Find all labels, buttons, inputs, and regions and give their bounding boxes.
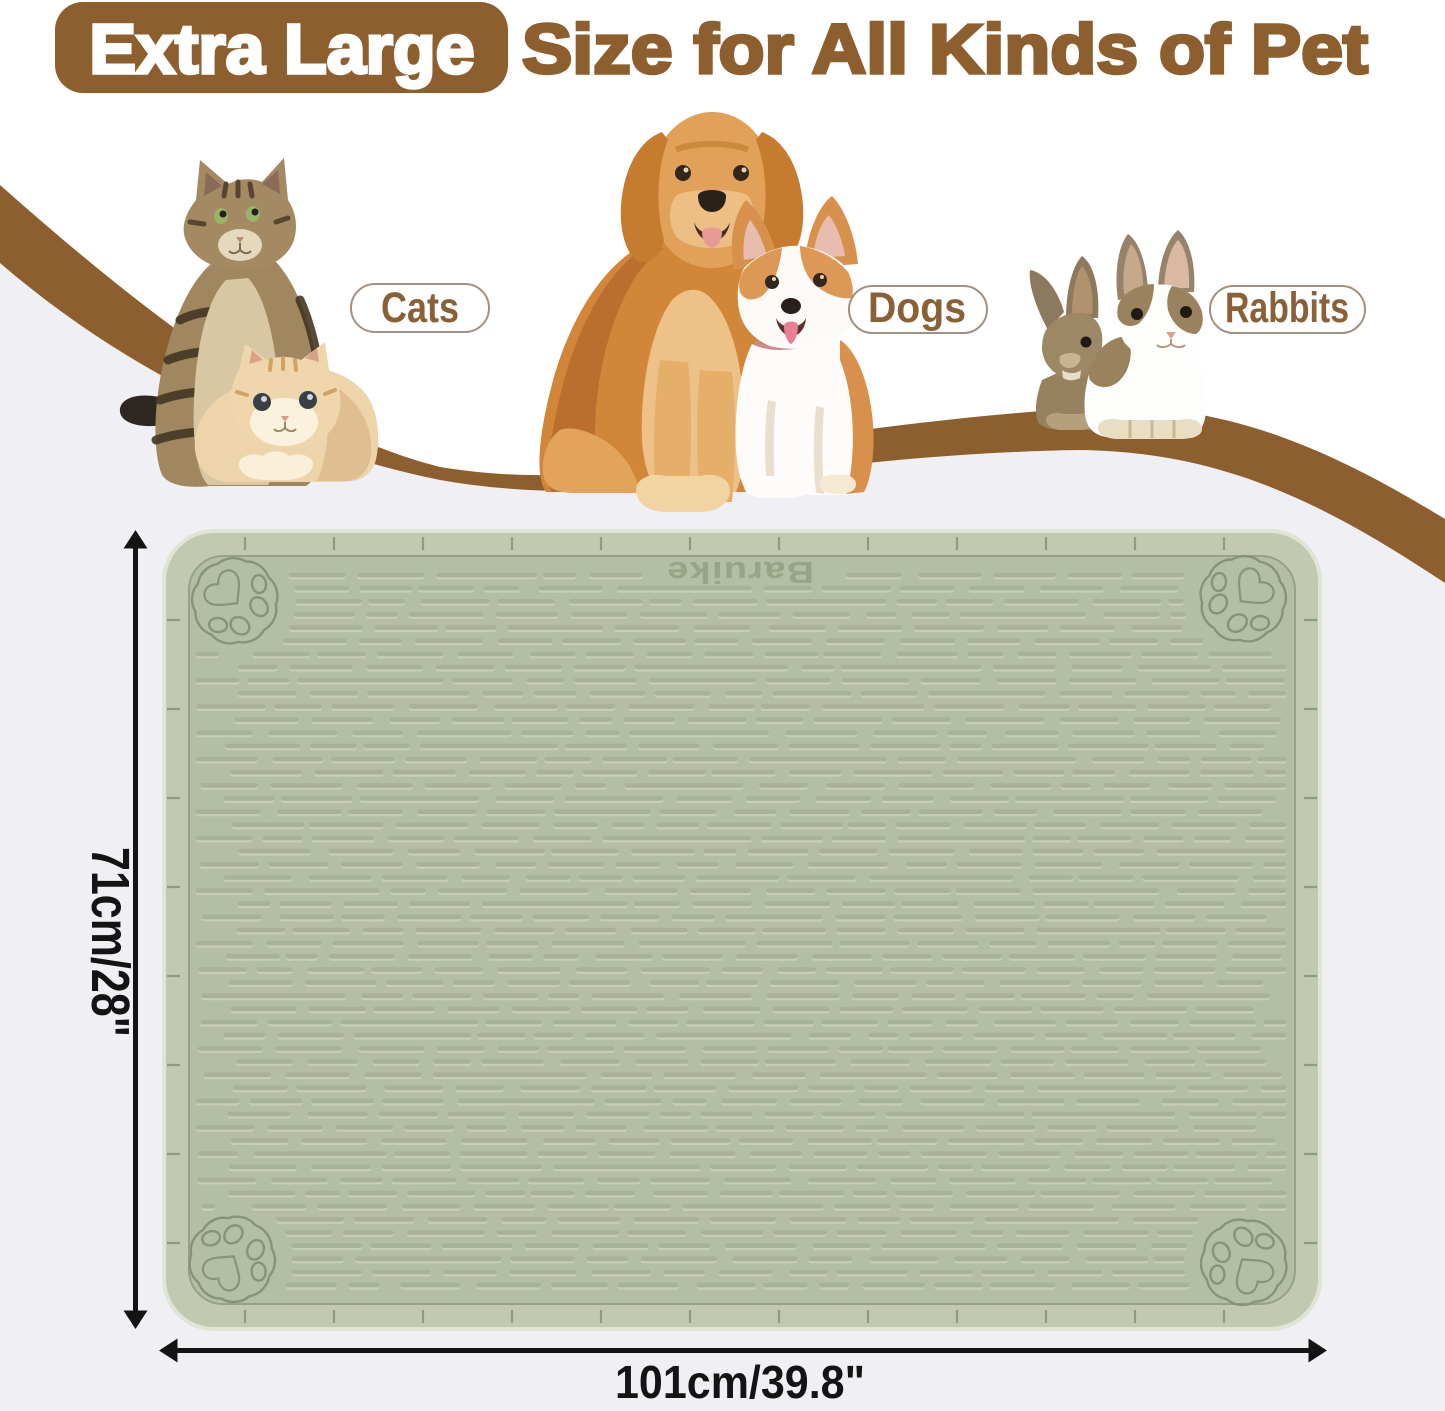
svg-text:Extra Large: Extra Large xyxy=(89,10,474,88)
svg-text:Size for All Kinds of Pet: Size for All Kinds of Pet xyxy=(522,10,1368,88)
svg-text:Rabbits: Rabbits xyxy=(1225,284,1349,332)
svg-text:71cm/28": 71cm/28" xyxy=(80,847,140,1037)
svg-text:Cats: Cats xyxy=(381,284,459,332)
svg-text:Dogs: Dogs xyxy=(868,284,966,332)
svg-text:101cm/39.8": 101cm/39.8" xyxy=(615,1356,865,1408)
svg-text:Baruike: Baruike xyxy=(666,555,814,590)
